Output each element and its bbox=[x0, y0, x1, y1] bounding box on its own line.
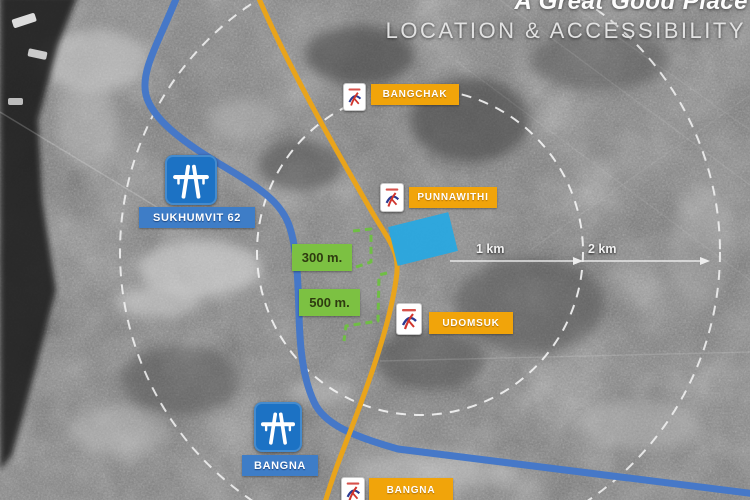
bts-icon bbox=[396, 303, 422, 335]
bts-icon bbox=[341, 477, 365, 500]
map-imagery bbox=[0, 0, 750, 500]
satellite-map bbox=[0, 0, 750, 500]
bts-icon bbox=[380, 183, 404, 212]
slide-heading: LOCATION & ACCESSIBILITY bbox=[386, 18, 746, 44]
ship bbox=[8, 98, 23, 105]
highway-label-bangna: BANGNA bbox=[242, 455, 318, 476]
radius-label-2km: 2 km bbox=[588, 242, 617, 256]
motorway-icon bbox=[165, 155, 217, 205]
motorway-icon bbox=[254, 402, 302, 452]
distance-label-500m: 500 m. bbox=[299, 289, 360, 316]
radius-label-1km: 1 km bbox=[476, 242, 505, 256]
station-label-punnawithi: PUNNAWITHI bbox=[409, 187, 497, 208]
distance-label-300m: 300 m. bbox=[292, 244, 352, 271]
station-label-bangna: BANGNA bbox=[369, 478, 453, 500]
station-label-bangchak: BANGCHAK bbox=[371, 84, 459, 105]
slide-tagline: A Great Good Place bbox=[514, 0, 748, 16]
location-map-slide: BANGCHAK PUNNAWITHI UDOMSUK BANGNA bbox=[0, 0, 750, 500]
station-label-udomsuk: UDOMSUK bbox=[429, 312, 513, 334]
highway-label-sukhumvit62: SUKHUMVIT 62 bbox=[139, 207, 255, 228]
bts-icon bbox=[343, 83, 366, 111]
